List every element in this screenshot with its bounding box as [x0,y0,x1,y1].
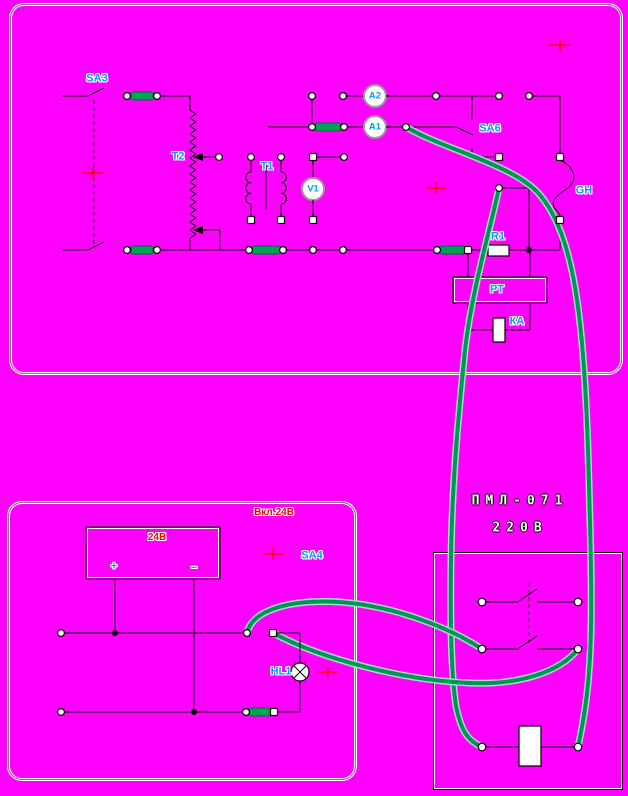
sa3-switch[interactable] [62,88,104,250]
fuse-a1[interactable] [315,123,341,131]
junction-dot [526,247,532,253]
r1-resistor[interactable] [488,245,509,256]
power-24v-circuit[interactable] [61,527,309,716]
fuse-bottom-left[interactable] [131,246,246,254]
gh-element[interactable] [532,96,574,250]
contactor-voltage-label: 220В [492,521,547,536]
t2-wiper-arrow [193,153,203,161]
junction-dot [112,630,118,636]
label-r1: R1 [491,232,505,243]
label-hl1: HL1 [271,667,292,678]
main-bottom-bus[interactable] [252,245,560,256]
ammeter-a2-branch[interactable] [312,85,496,124]
label-gh: GH [576,186,593,197]
contactor-type-label: ПМЛ-071 [472,494,569,509]
contactor-coil[interactable] [519,726,541,766]
ka-coil[interactable] [493,318,505,342]
label-v1: V1 [307,184,319,194]
wiring-layer [0,0,628,796]
label-ka: КА [510,317,525,328]
label-t2: T2 [172,152,185,163]
fuse-bus[interactable] [252,246,280,254]
simulator-screen: SA3 T2 T1 A2 A1 V1 SA6 GH R1 РТ КА Вкл.2… [0,0,628,796]
fuse-r1[interactable] [440,246,465,254]
cursor-cross-markers [83,39,570,678]
label-power-title: Вкл.24В [254,508,294,518]
patch-wires[interactable] [247,127,591,747]
label-a1: A1 [369,122,381,132]
label-t1: T1 [261,162,274,173]
label-sa6: SA6 [479,124,500,135]
label-a2: A2 [369,91,381,101]
fuse-hl1[interactable] [249,708,271,716]
label-minus: – [191,563,197,574]
junction-dot [191,709,197,715]
label-plus: + [111,562,117,573]
t2-autotransformer[interactable] [190,96,220,250]
label-sa4: SA4 [301,551,322,562]
label-24v: 24В [148,533,166,543]
label-sa3: SA3 [86,74,107,85]
label-rt: РТ [490,285,504,296]
